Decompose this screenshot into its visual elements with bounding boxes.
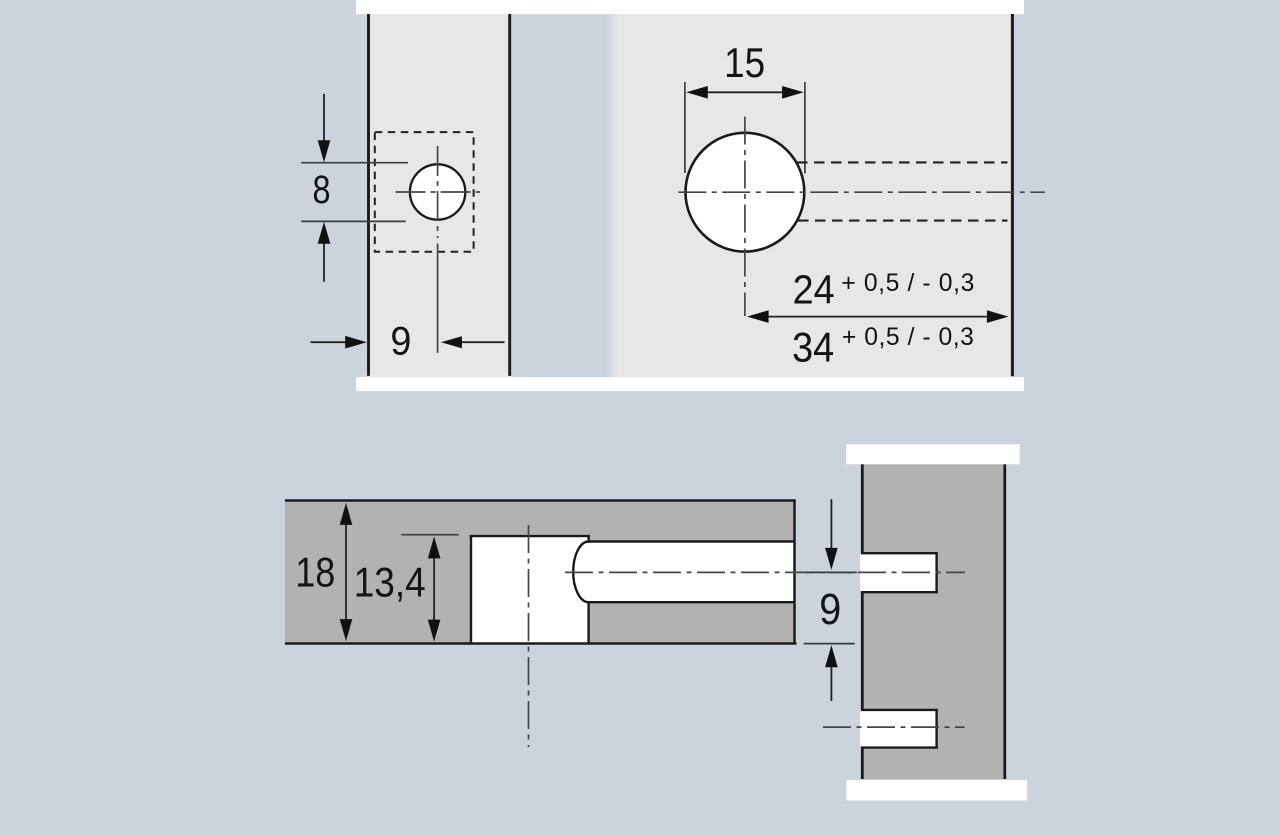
svg-text:34: 34 [792,324,834,371]
svg-text:9: 9 [390,320,411,364]
svg-text:9: 9 [819,585,841,634]
svg-text:24: 24 [793,266,835,312]
svg-text:8: 8 [313,168,331,212]
svg-text:13,4: 13,4 [354,559,426,606]
svg-text:+ 0,5 / - 0,3: + 0,5 / - 0,3 [841,270,974,297]
svg-text:+ 0,5 / - 0,3: + 0,5 / - 0,3 [842,324,974,351]
svg-text:15: 15 [724,39,765,86]
svg-text:18: 18 [295,549,335,596]
